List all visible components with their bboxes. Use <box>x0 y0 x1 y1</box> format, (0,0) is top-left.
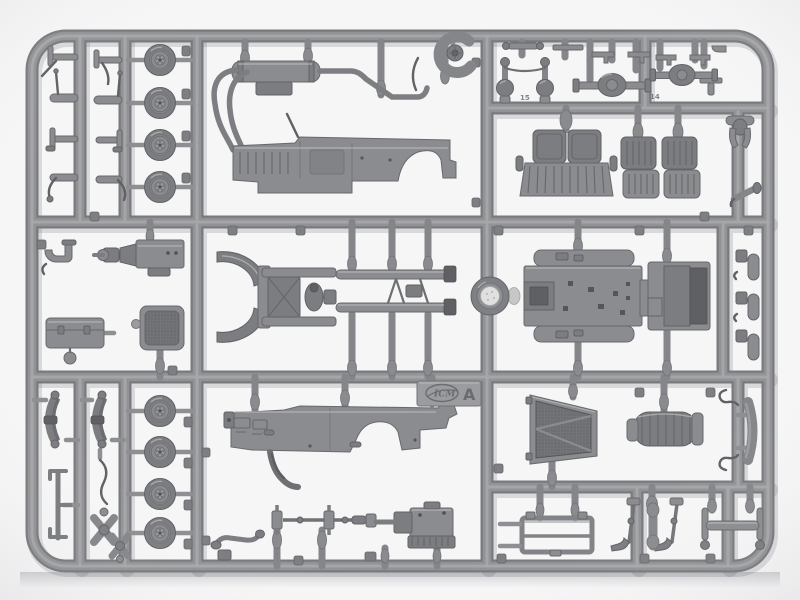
photo-vignette <box>0 0 800 600</box>
sprue-photo-canvas: ICM A 15 14 <box>0 0 800 600</box>
photo-model-kit-sprue: ICM A 15 14 <box>0 0 800 600</box>
